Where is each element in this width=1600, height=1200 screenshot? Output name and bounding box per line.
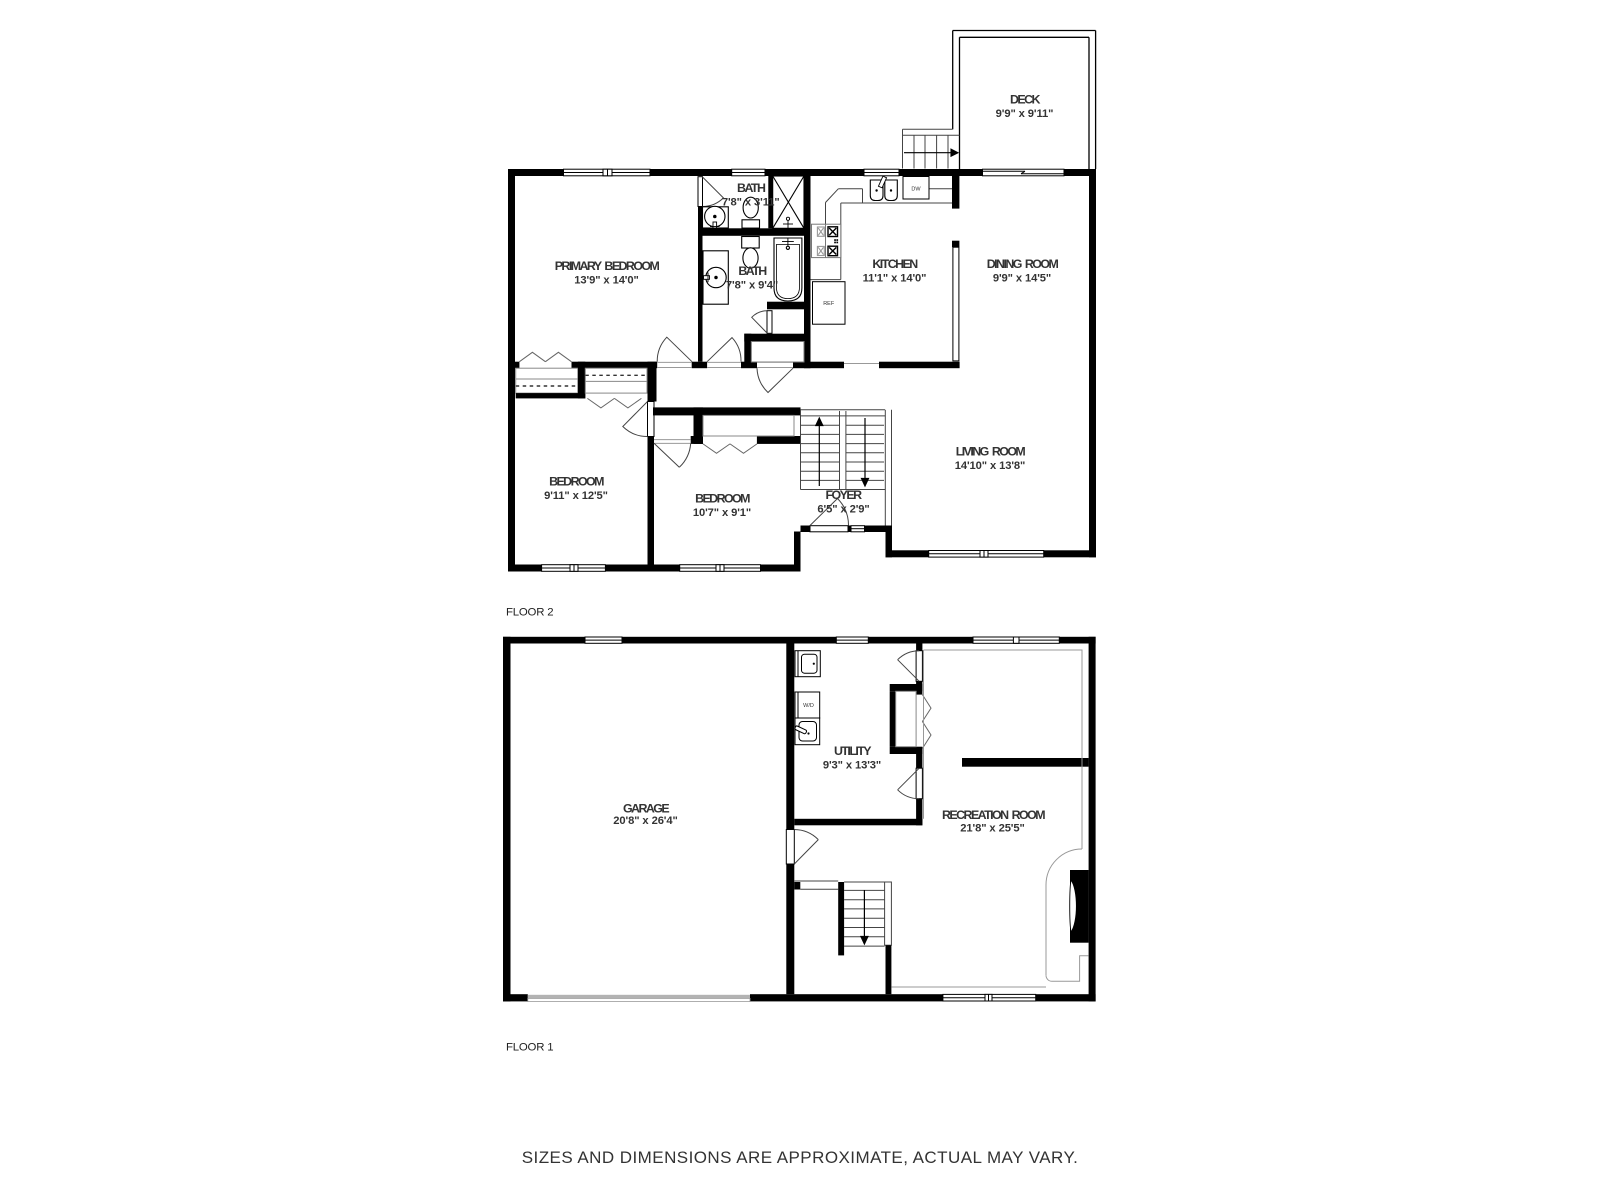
svg-text:UTILITY: UTILITY bbox=[834, 744, 872, 758]
svg-text:BATH: BATH bbox=[738, 264, 767, 278]
svg-text:W/D: W/D bbox=[803, 703, 814, 709]
svg-text:7'8" x 3'11": 7'8" x 3'11" bbox=[722, 197, 780, 209]
svg-text:LIVING ROOM: LIVING ROOM bbox=[956, 445, 1026, 459]
svg-text:13'9" x 14'0": 13'9" x 14'0" bbox=[574, 275, 638, 287]
svg-text:RECREATION ROOM: RECREATION ROOM bbox=[942, 808, 1045, 822]
svg-text:REF: REF bbox=[823, 301, 835, 307]
svg-text:BEDROOM: BEDROOM bbox=[549, 475, 604, 489]
svg-text:9'3" x 13'3": 9'3" x 13'3" bbox=[823, 760, 881, 772]
svg-text:FLOOR 1: FLOOR 1 bbox=[506, 1042, 553, 1054]
svg-text:6'5" x 2'9": 6'5" x 2'9" bbox=[817, 504, 869, 516]
svg-text:DINING ROOM: DINING ROOM bbox=[987, 257, 1059, 271]
svg-text:21'8" x 25'5": 21'8" x 25'5" bbox=[960, 823, 1024, 835]
svg-text:KITCHEN: KITCHEN bbox=[872, 257, 918, 271]
svg-text:BATH: BATH bbox=[737, 181, 766, 195]
svg-text:20'8" x 26'4": 20'8" x 26'4" bbox=[613, 815, 677, 827]
svg-text:BEDROOM: BEDROOM bbox=[695, 492, 750, 506]
svg-text:9'9" x 9'11": 9'9" x 9'11" bbox=[996, 108, 1054, 120]
svg-text:9'9" x 14'5": 9'9" x 14'5" bbox=[993, 273, 1051, 285]
svg-text:FLOOR 2: FLOOR 2 bbox=[506, 607, 553, 619]
svg-text:7'8" x 9'4": 7'8" x 9'4" bbox=[726, 280, 778, 292]
svg-text:DW: DW bbox=[911, 187, 921, 193]
svg-text:DECK: DECK bbox=[1010, 93, 1041, 107]
svg-text:FOYER: FOYER bbox=[826, 488, 863, 502]
svg-text:SIZES AND DIMENSIONS ARE APPRO: SIZES AND DIMENSIONS ARE APPROXIMATE, AC… bbox=[522, 1148, 1079, 1167]
svg-text:GARAGE: GARAGE bbox=[623, 802, 669, 816]
svg-text:14'10" x 13'8": 14'10" x 13'8" bbox=[955, 460, 1026, 472]
svg-text:10'7" x 9'1": 10'7" x 9'1" bbox=[693, 507, 751, 519]
svg-text:9'11" x 12'5": 9'11" x 12'5" bbox=[544, 490, 608, 502]
svg-text:11'1" x 14'0": 11'1" x 14'0" bbox=[863, 273, 927, 285]
svg-text:PRIMARY BEDROOM: PRIMARY BEDROOM bbox=[555, 259, 660, 273]
